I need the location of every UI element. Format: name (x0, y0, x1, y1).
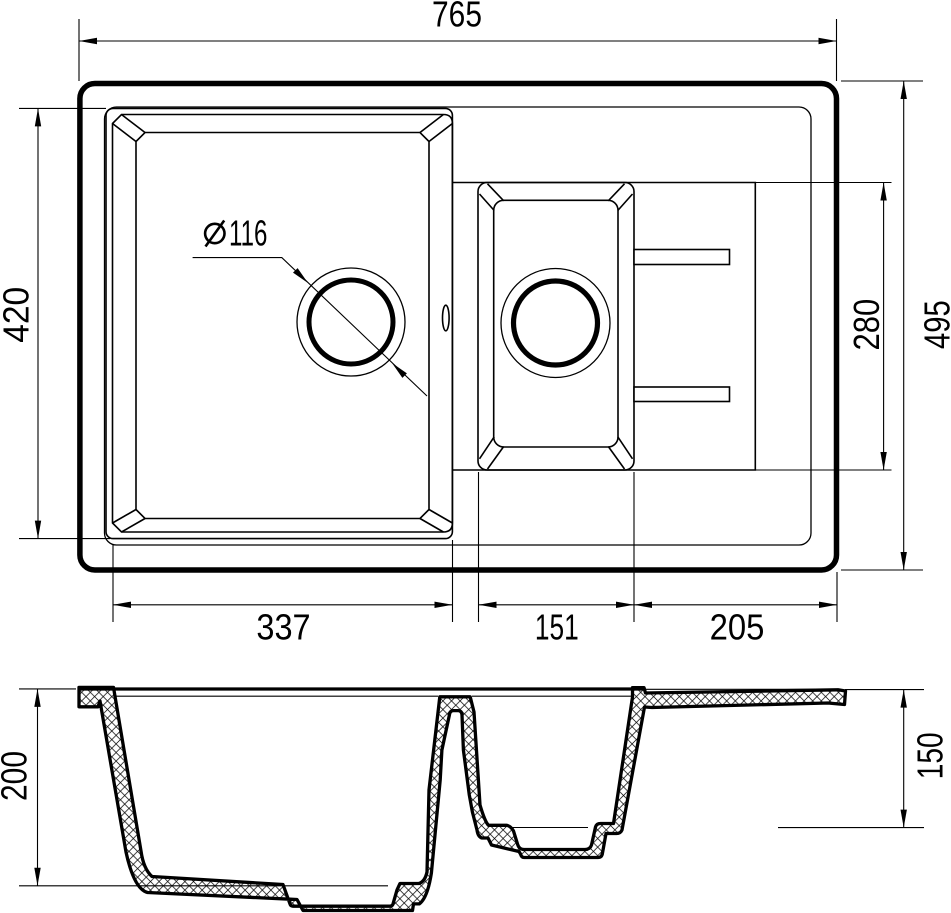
svg-text:205: 205 (710, 608, 765, 648)
svg-text:420: 420 (0, 287, 37, 343)
svg-text:280: 280 (847, 299, 888, 351)
svg-text:116: 116 (229, 212, 267, 253)
svg-text:337: 337 (256, 608, 310, 648)
svg-text:495: 495 (917, 300, 951, 349)
svg-text:151: 151 (535, 606, 579, 647)
svg-text:150: 150 (910, 732, 950, 779)
svg-text:765: 765 (432, 0, 482, 35)
svg-text:200: 200 (0, 751, 35, 801)
